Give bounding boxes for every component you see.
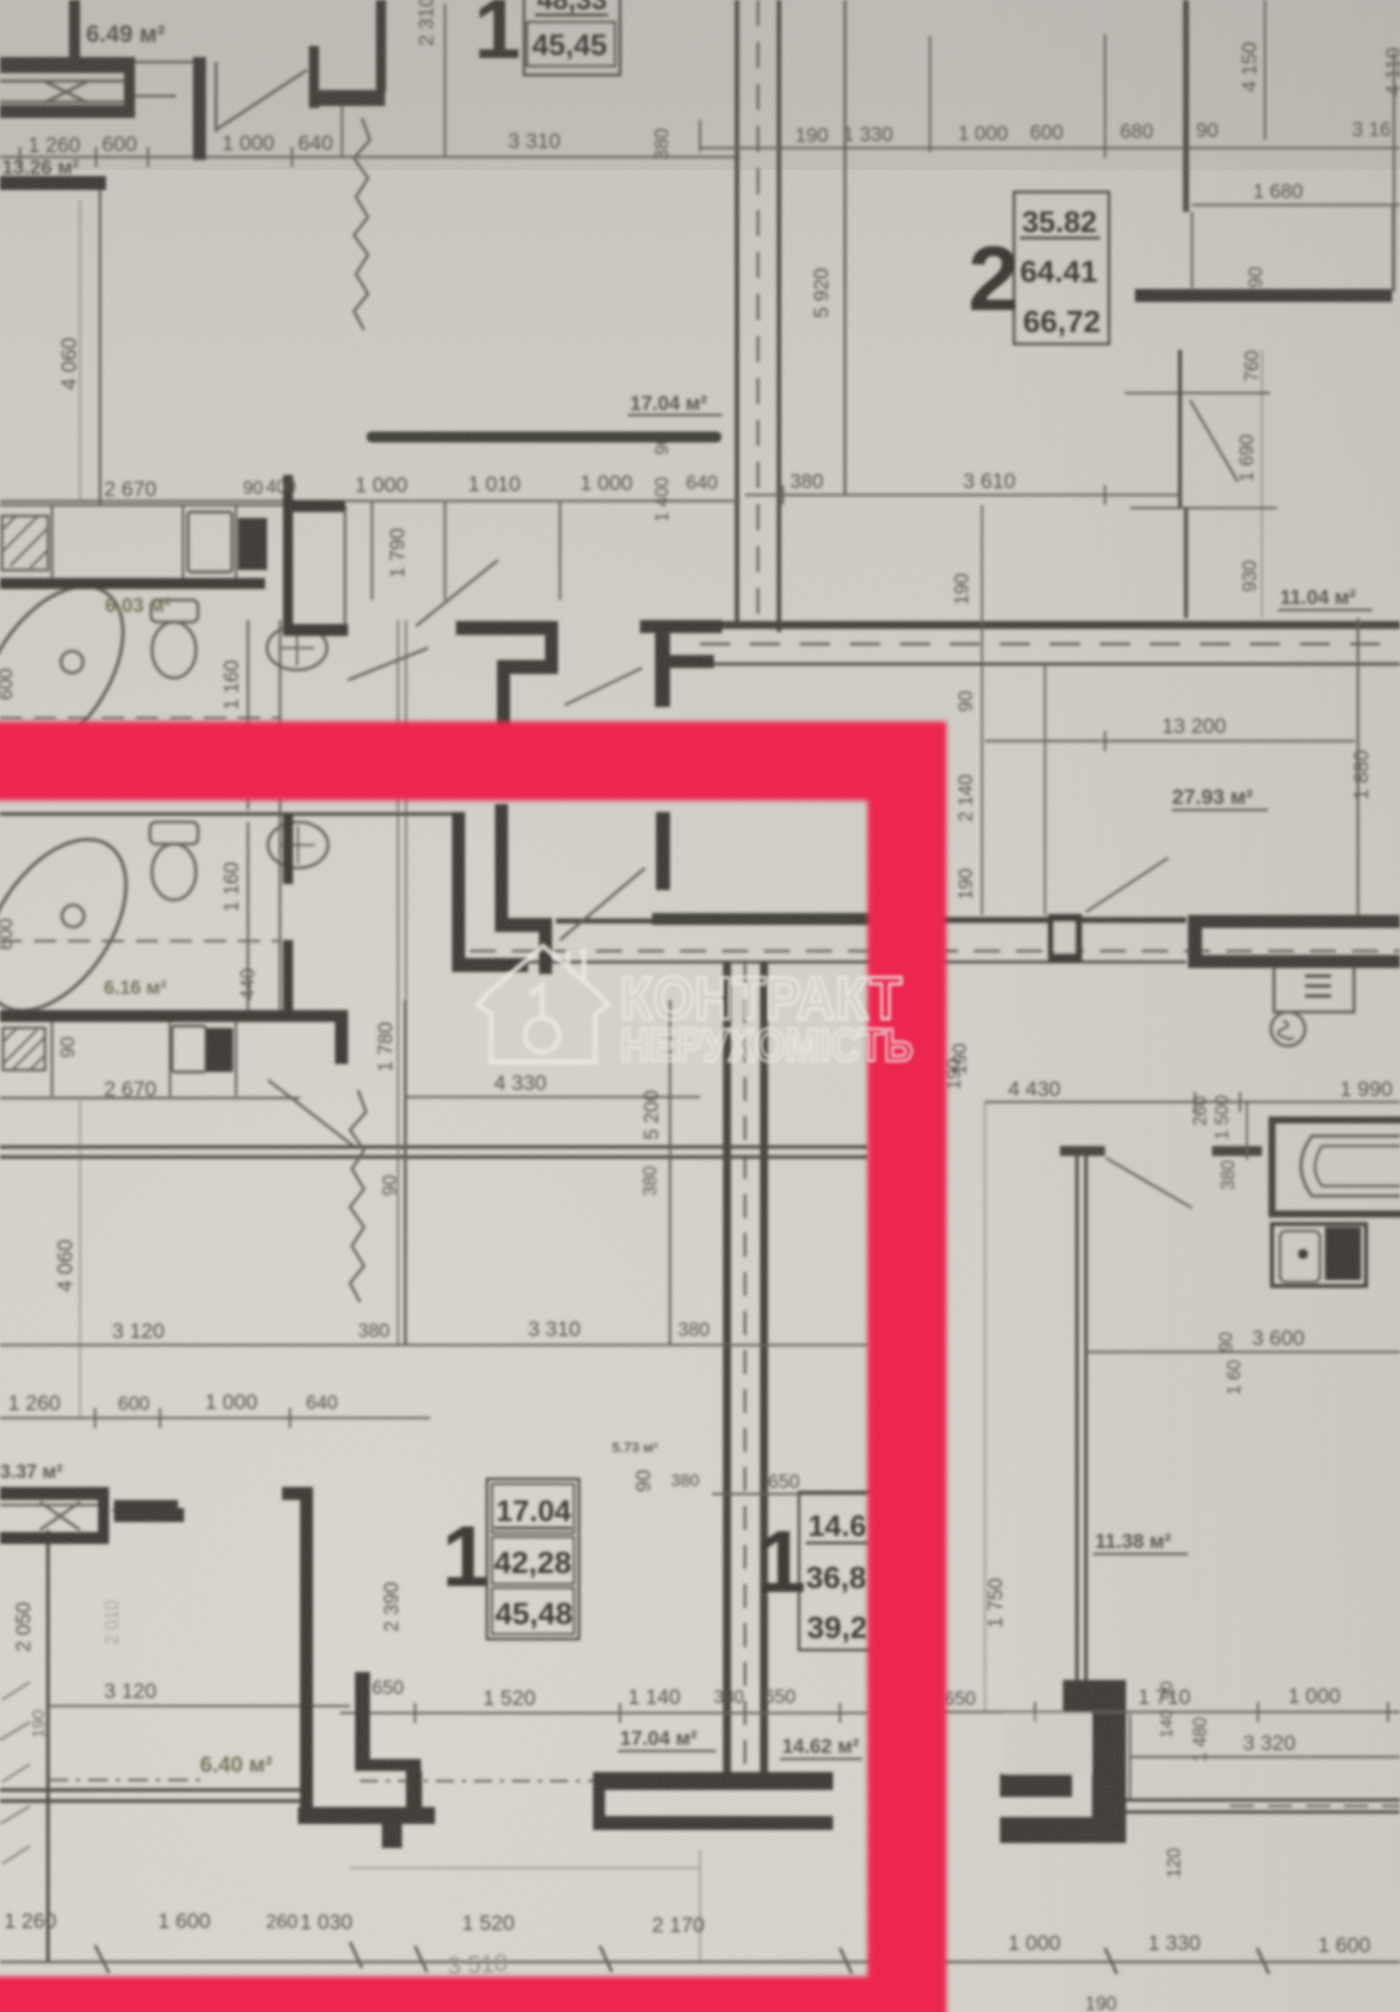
svg-text:НЕРУХОМІСТЬ: НЕРУХОМІСТЬ	[620, 1019, 913, 1071]
